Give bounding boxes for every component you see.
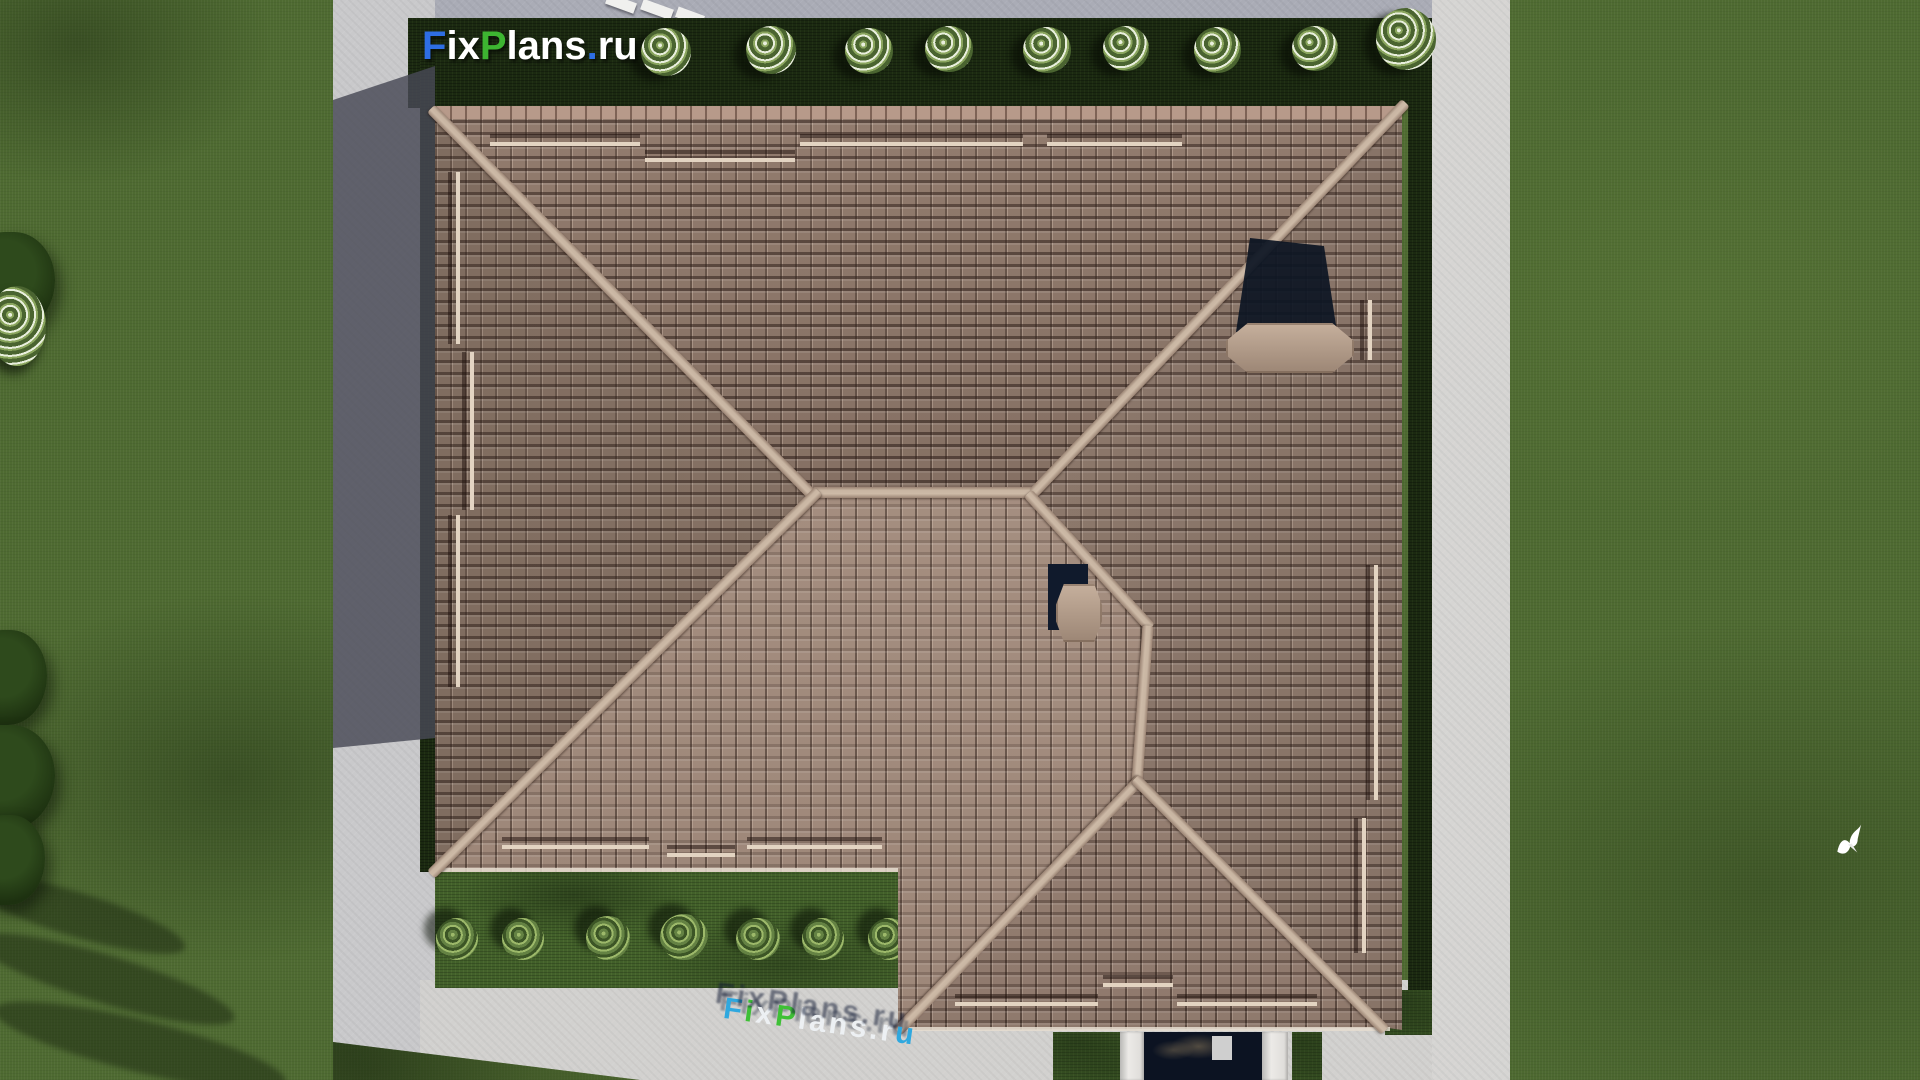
- watermark-letter: l: [507, 24, 518, 68]
- aerial-render-scene: FixPlans.ru FixPlans.ru: [0, 0, 1920, 1080]
- entrance-pillar-left: [1120, 1032, 1144, 1080]
- watermark-letter: u: [893, 1016, 919, 1052]
- snow-rail: [502, 845, 649, 849]
- snow-rail: [456, 515, 460, 687]
- watermark-letter: n: [540, 24, 564, 68]
- snow-rail: [747, 845, 882, 849]
- snow-rail: [667, 853, 735, 857]
- watermark-letter: .: [587, 24, 598, 68]
- snow-rail: [1047, 142, 1182, 146]
- snow-rail: [1374, 565, 1378, 800]
- watermark-letter: P: [480, 24, 507, 68]
- snow-rail: [1103, 983, 1173, 987]
- snow-rail: [1177, 1002, 1317, 1006]
- snow-rail: [1368, 300, 1372, 360]
- watermark-letter: a: [518, 24, 540, 68]
- watermark-letter: i: [446, 24, 457, 68]
- roof: [0, 0, 1920, 1080]
- snow-rail: [470, 352, 474, 510]
- entrance-light-panel: [1212, 1036, 1232, 1060]
- logo-watermark: FixPlans.ru: [422, 24, 638, 69]
- watermark-letter: s: [564, 24, 586, 68]
- entrance-door: [1135, 1032, 1262, 1080]
- entrance-pillar-right: [1262, 1032, 1288, 1080]
- snow-rail: [955, 1002, 1098, 1006]
- eave-edge-extension: [898, 1027, 1390, 1031]
- chimney-small-cap: [1056, 584, 1102, 642]
- watermark-letter: r: [598, 24, 614, 68]
- snow-rail: [1362, 818, 1366, 953]
- watermark-letter: u: [613, 24, 637, 68]
- snow-rail: [456, 172, 460, 344]
- watermark-letter: x: [458, 24, 480, 68]
- snow-rail: [645, 158, 795, 162]
- snow-rail: [490, 142, 640, 146]
- watermark-letter: F: [422, 24, 446, 68]
- snow-rail: [800, 142, 1023, 146]
- eave-row-top: [435, 106, 1402, 119]
- ridge-main: [812, 487, 1038, 498]
- chimney-large-cap: [1226, 323, 1354, 373]
- eave-edge-bottom: [435, 868, 898, 872]
